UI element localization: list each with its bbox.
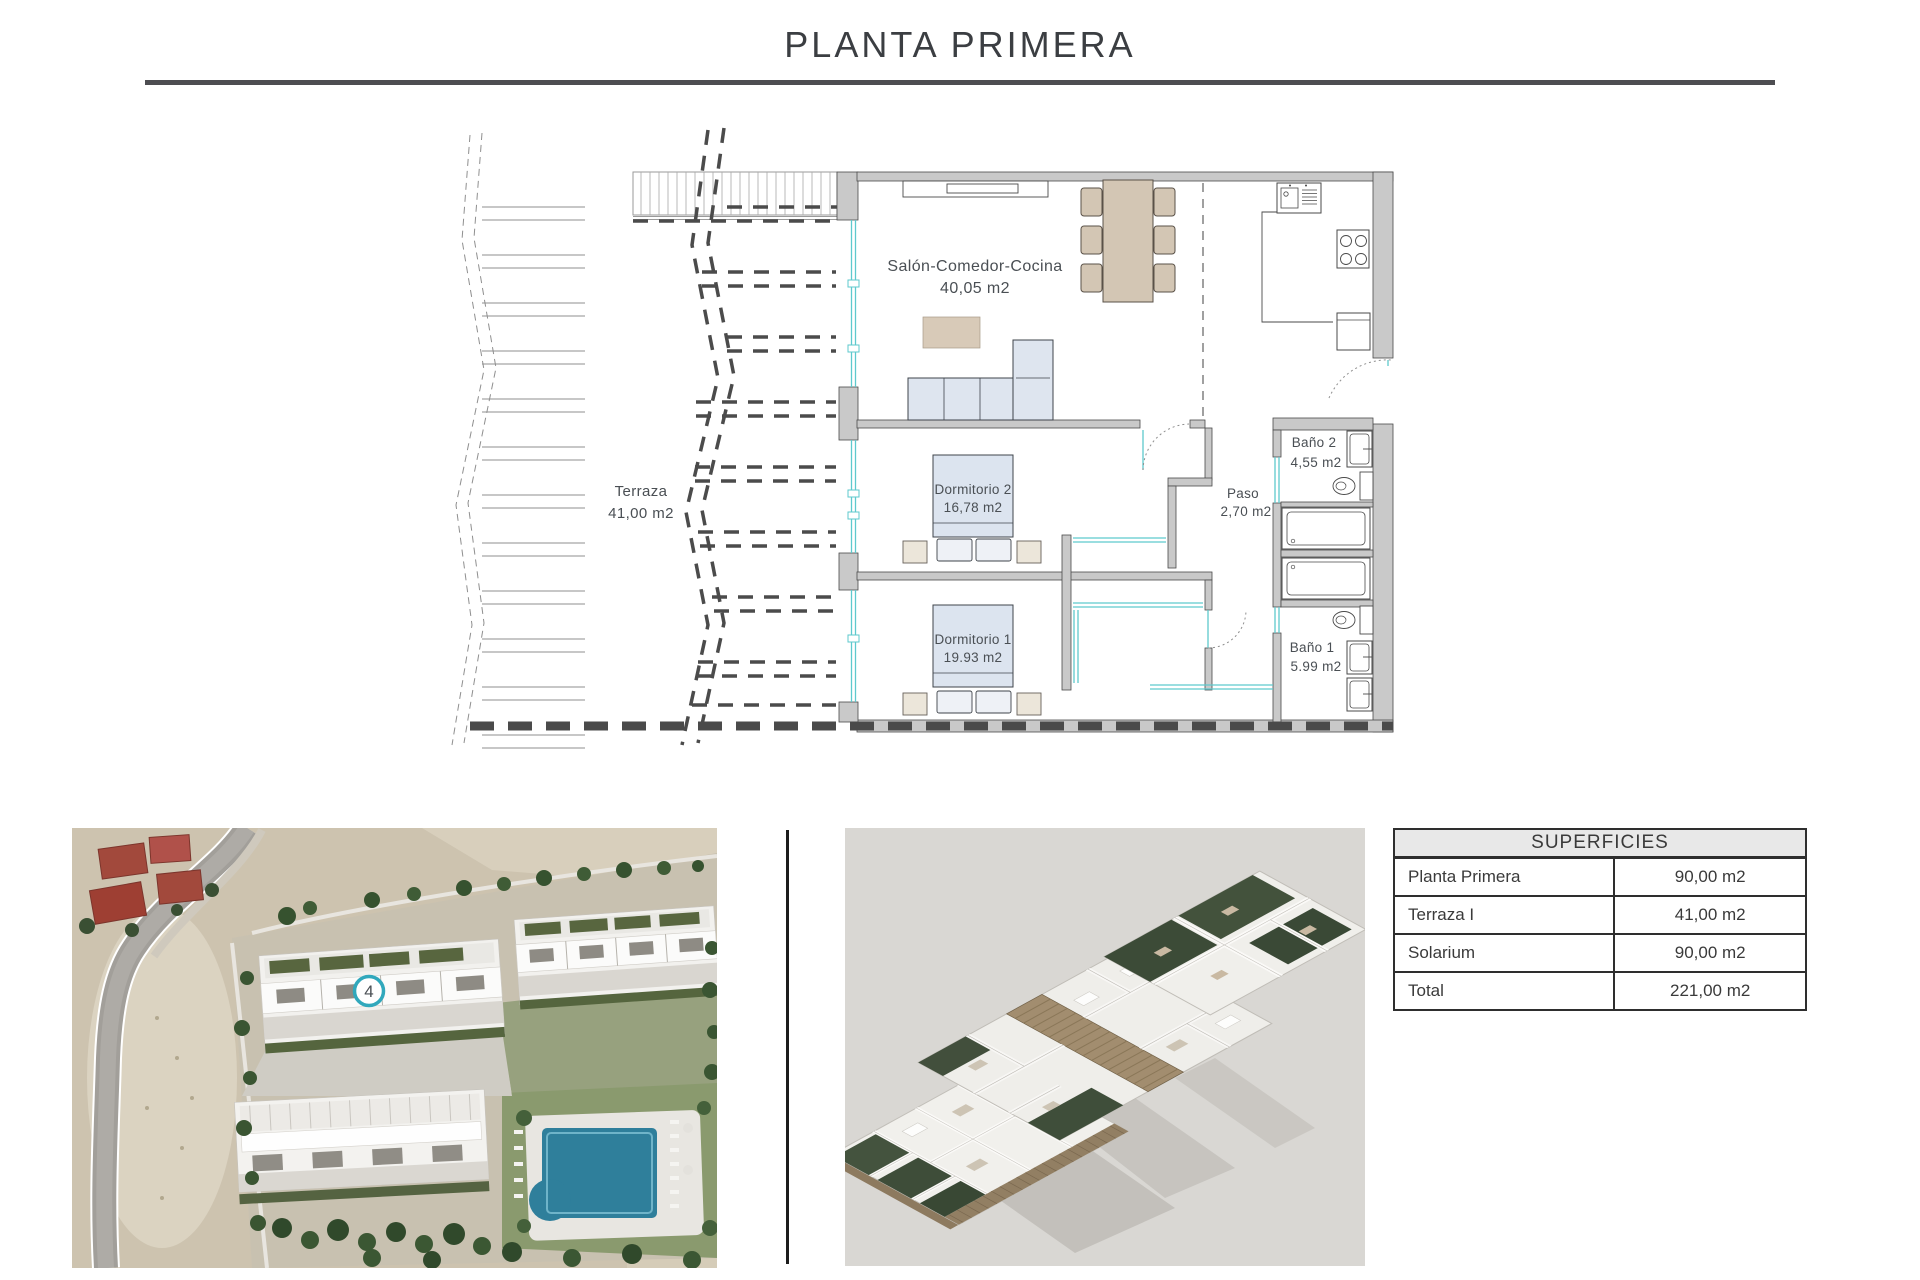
unit-marker-badge: 4 (355, 977, 384, 1006)
salon-label: Salón-Comedor-Cocina (887, 258, 1062, 275)
terraza-area-label: 41,00 m2 (608, 505, 674, 522)
row-label: Terraza I (1395, 897, 1615, 933)
superficies-table-header: SUPERFICIES (1395, 830, 1805, 859)
row-label: Planta Primera (1395, 859, 1615, 895)
dormitorio2-label: Dormitorio 2 (934, 482, 1011, 497)
table-row: Total 221,00 m2 (1395, 973, 1805, 1009)
row-value: 41,00 m2 (1615, 897, 1805, 933)
table-row: Terraza I 41,00 m2 (1395, 897, 1805, 935)
bathroom-fixtures: Baño 2 4,55 m2 Baño 1 5.99 m2 Paso 2,70 … (1221, 431, 1373, 711)
unit-marker-number: 4 (364, 982, 373, 1001)
title-rule (145, 80, 1775, 85)
dormitorio2: Dormitorio 2 16,78 m2 (903, 455, 1041, 563)
aerial-site-photo: 4 (72, 828, 717, 1268)
paso-label: Paso (1227, 486, 1259, 501)
section-separator-line (786, 830, 789, 1264)
dormitorio1: Dormitorio 1 19.93 m2 (903, 605, 1041, 715)
salon-furniture: Salón-Comedor-Cocina 40,05 m2 (887, 180, 1175, 420)
terraza-label: Terraza (615, 483, 668, 500)
superficies-table: SUPERFICIES Planta Primera 90,00 m2 Terr… (1393, 828, 1807, 1011)
salon-area-label: 40,05 m2 (940, 280, 1010, 297)
table-row: Solarium 90,00 m2 (1395, 935, 1805, 973)
terraza-area: Terraza 41,00 m2 (452, 128, 837, 748)
row-value: 90,00 m2 (1615, 935, 1805, 971)
isometric-render (845, 828, 1365, 1266)
aerial-right-building (514, 906, 717, 1010)
dormitorio1-label: Dormitorio 1 (934, 632, 1011, 647)
bano2-label: Baño 2 (1292, 435, 1337, 450)
bano2-area-label: 4,55 m2 (1291, 455, 1342, 470)
dormitorio2-area-label: 16,78 m2 (944, 500, 1003, 515)
page-title: PLANTA PRIMERA (0, 24, 1920, 66)
kitchen-fixtures (1203, 183, 1370, 418)
dormitorio1-area-label: 19.93 m2 (944, 650, 1003, 665)
paso-area-label: 2,70 m2 (1221, 504, 1272, 519)
bano1-label: Baño 1 (1290, 640, 1335, 655)
row-value: 90,00 m2 (1615, 859, 1805, 895)
row-label: Solarium (1395, 935, 1615, 971)
aerial-pool-area (514, 1110, 704, 1241)
bano1-area-label: 5.99 m2 (1291, 659, 1342, 674)
table-row: Planta Primera 90,00 m2 (1395, 859, 1805, 897)
row-label: Total (1395, 973, 1615, 1009)
plan-sheet-page: PLANTA PRIMERA Terraza 41,00 m2 (0, 0, 1920, 1280)
floor-plan-drawing: Terraza 41,00 m2 (440, 120, 1440, 765)
row-value: 221,00 m2 (1615, 973, 1805, 1009)
